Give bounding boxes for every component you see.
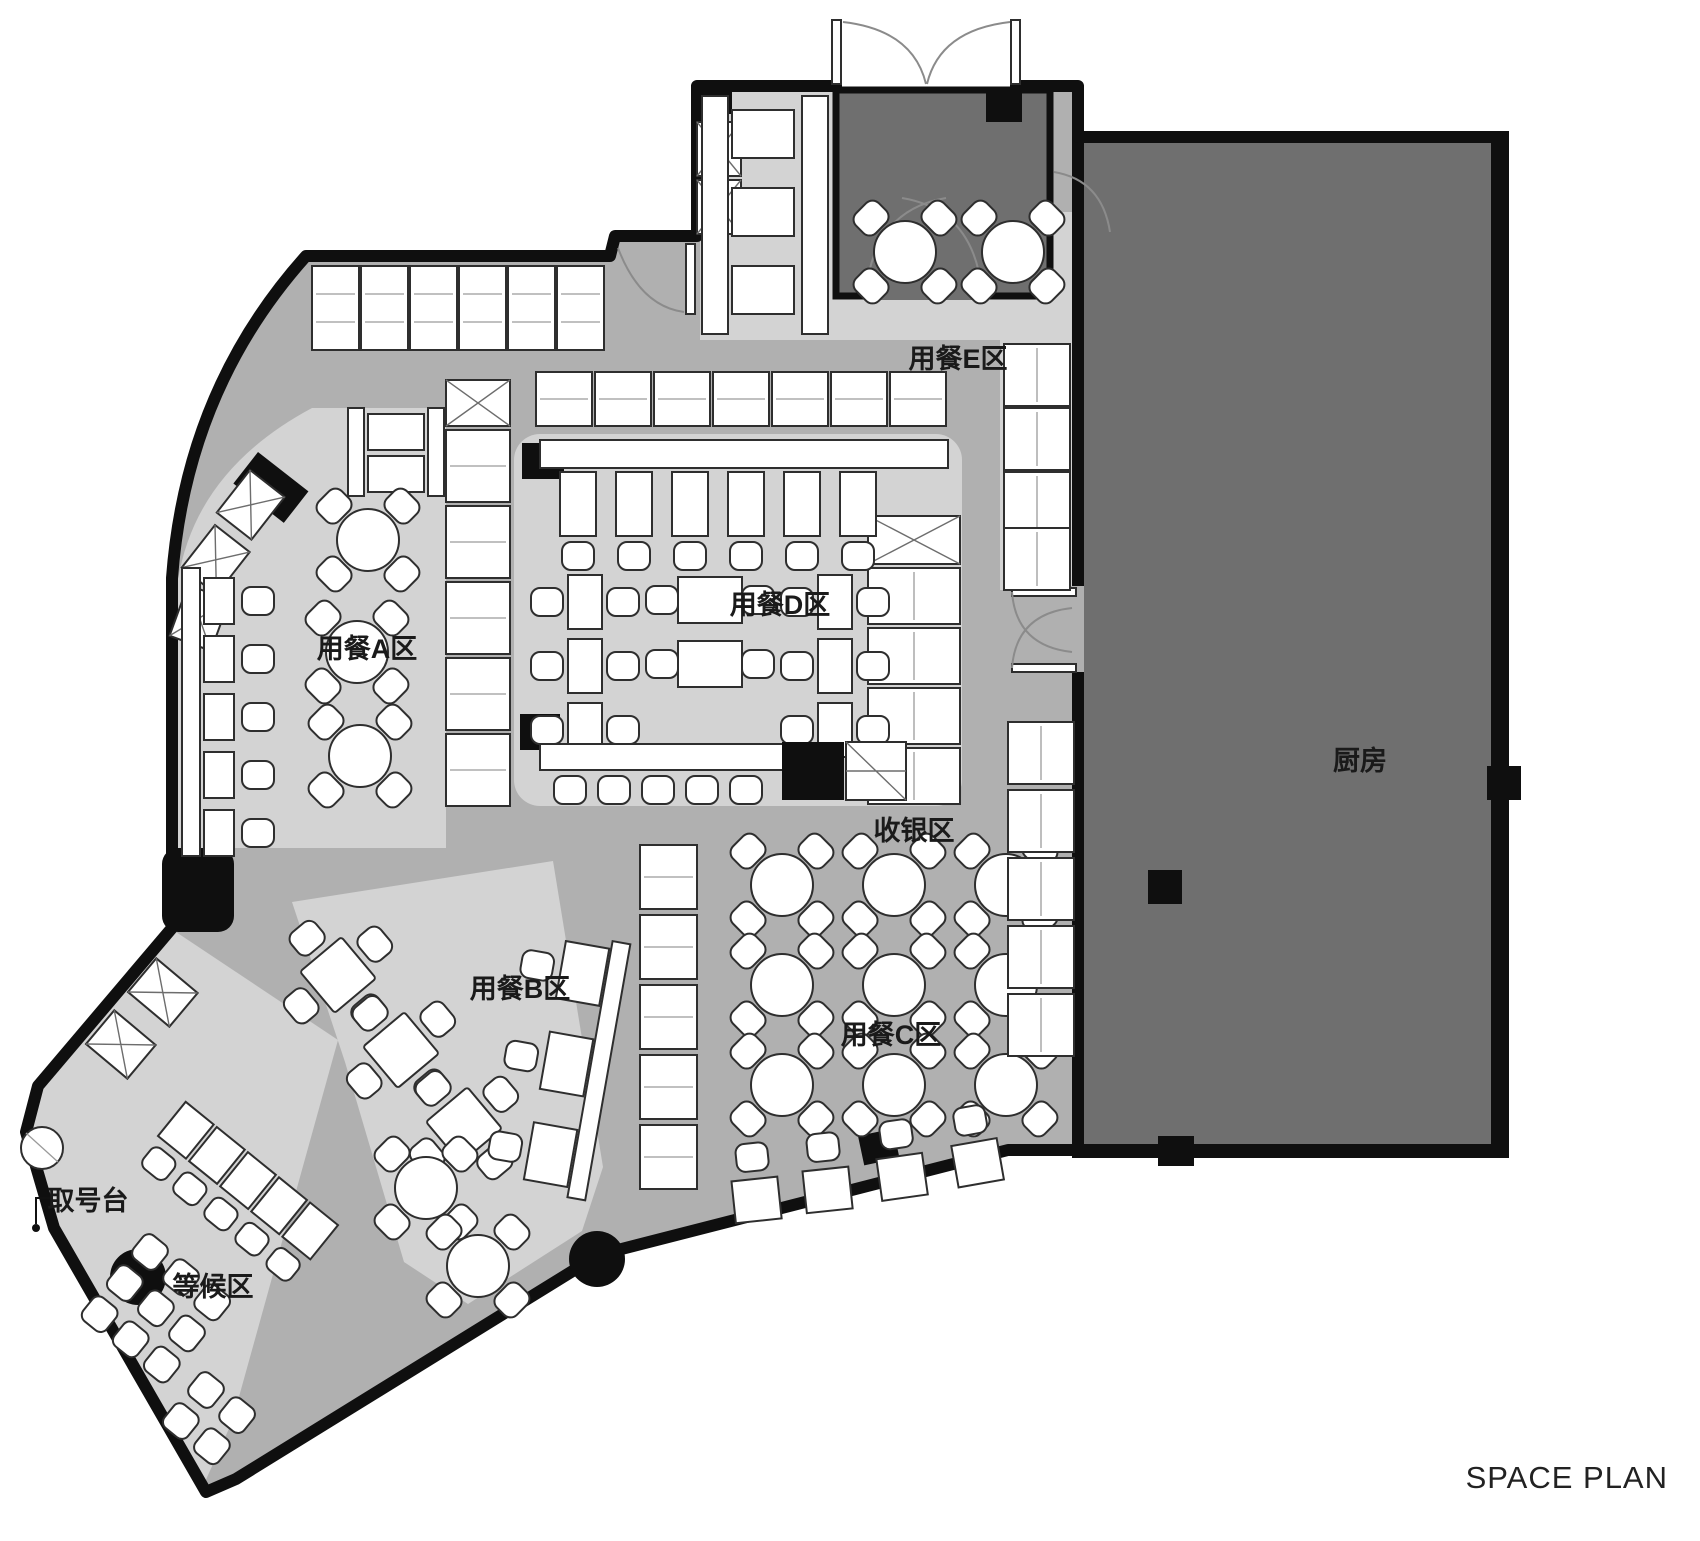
- dining-c-right-booth-column: [1008, 722, 1074, 1056]
- floor-plan-page: 用餐E区 用餐A区 用餐D区 收银区 用餐B区 用餐C区 厨房 取号台 等候区 …: [0, 0, 1700, 1541]
- label-dining-a: 用餐A区: [317, 634, 418, 664]
- side-door-leaf: [686, 244, 695, 314]
- entrance-door-swing: [927, 22, 1010, 84]
- label-dining-c: 用餐C区: [841, 1020, 942, 1050]
- label-dining-e: 用餐E区: [908, 344, 1007, 374]
- kitchen-door-opening: [1070, 586, 1084, 672]
- page-title: SPACE PLAN: [1466, 1460, 1668, 1495]
- label-dining-b: 用餐B区: [470, 974, 571, 1004]
- kitchen-column: [1148, 870, 1182, 904]
- dining-d-banquette: [540, 440, 948, 468]
- label-ticket-counter: 取号台: [48, 1185, 129, 1216]
- floor-plan: 用餐E区 用餐A区 用餐D区 收银区 用餐B区 用餐C区 厨房 取号台 等候区 …: [0, 0, 1700, 1541]
- label-dining-d: 用餐D区: [730, 590, 831, 620]
- ticket-counter-leader-dot: [32, 1224, 40, 1232]
- round-column: [569, 1231, 625, 1287]
- ticket-counter-desk: [21, 1127, 63, 1169]
- wall-corner-block: [162, 848, 234, 932]
- label-kitchen: 厨房: [1333, 746, 1387, 776]
- kitchen-door-leaf: [1012, 664, 1076, 672]
- wall-pilaster: [1158, 1136, 1194, 1166]
- dining-d-left-booth-column: [446, 380, 510, 806]
- kitchen-room: [1078, 137, 1503, 1152]
- top-booth-row: [312, 266, 604, 350]
- dining-e-booths: [702, 96, 828, 334]
- label-cashier: 收银区: [874, 816, 955, 846]
- entrance-door-swing: [843, 22, 926, 84]
- label-waiting-area: 等候区: [173, 1271, 254, 1302]
- dining-e-cabinet-column: [1004, 344, 1070, 590]
- dining-d-top-cabinets: [536, 372, 946, 426]
- entrance-door-leaf: [832, 20, 841, 84]
- dining-c-left-booth-column: [640, 845, 697, 1189]
- wall-pilaster: [1487, 766, 1521, 800]
- cashier-counter: [782, 742, 906, 800]
- wall-pilaster: [986, 88, 1022, 122]
- entrance-door-leaf: [1011, 20, 1020, 84]
